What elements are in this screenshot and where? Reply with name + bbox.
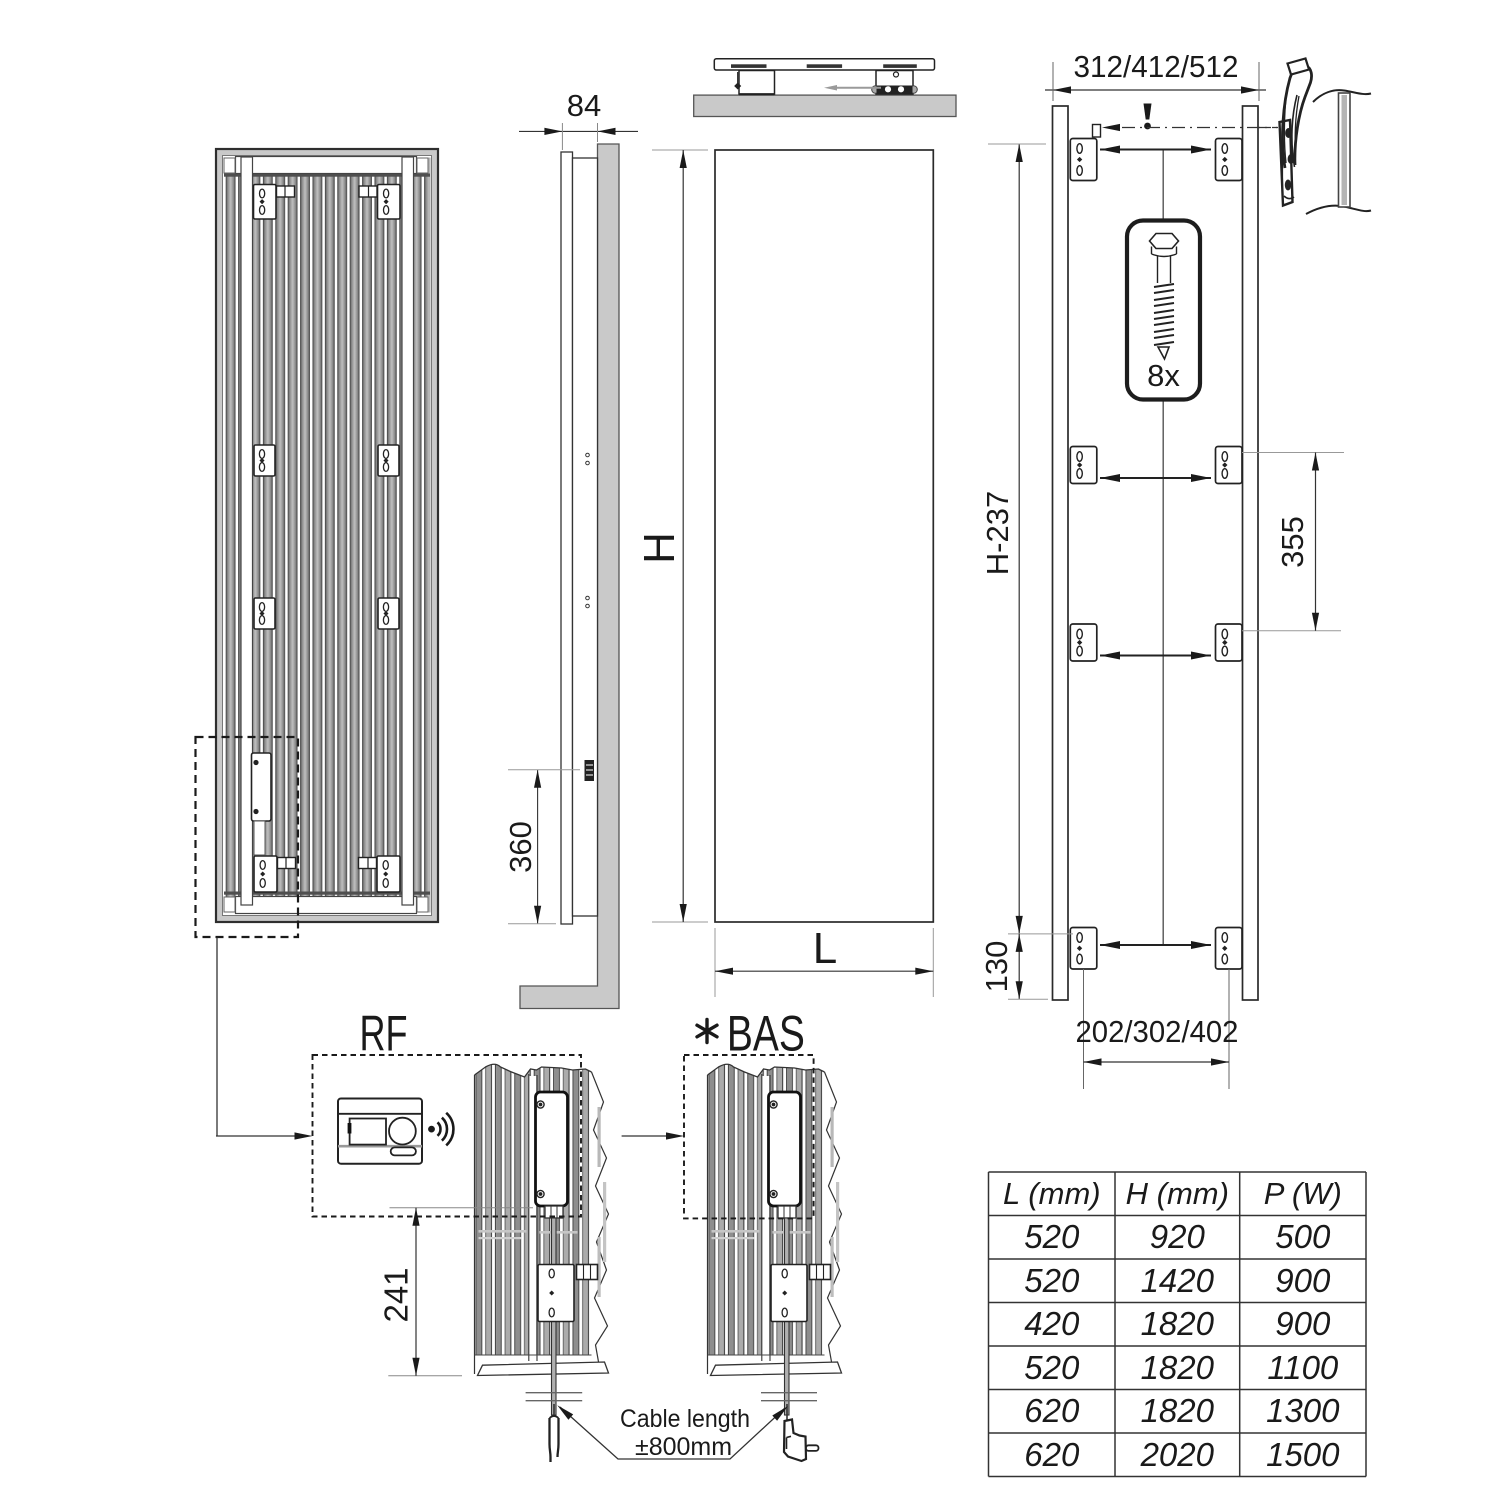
svg-text:900: 900 [1275,1262,1331,1299]
svg-text:1100: 1100 [1267,1349,1339,1386]
svg-text:355: 355 [1275,516,1310,568]
svg-text:1420: 1420 [1141,1262,1215,1299]
svg-text:900: 900 [1275,1305,1331,1342]
svg-text:520: 520 [1024,1262,1080,1299]
svg-text:H-237: H-237 [980,491,1015,575]
svg-text:920: 920 [1150,1218,1206,1255]
svg-text:420: 420 [1024,1305,1080,1342]
svg-text:8x: 8x [1147,358,1180,393]
svg-text:620: 620 [1024,1436,1080,1473]
svg-text:±800mm: ±800mm [635,1433,732,1461]
svg-text:520: 520 [1024,1349,1080,1386]
svg-text:L: L [813,924,837,973]
svg-text:2020: 2020 [1140,1436,1215,1473]
svg-text:1300: 1300 [1266,1392,1340,1429]
svg-text:520: 520 [1024,1218,1080,1255]
svg-text:1820: 1820 [1141,1305,1215,1342]
svg-text:500: 500 [1275,1218,1331,1255]
svg-text:1820: 1820 [1141,1392,1215,1429]
svg-text:241: 241 [378,1267,415,1322]
svg-text:84: 84 [567,88,601,123]
svg-text:130: 130 [979,941,1014,993]
svg-text:1820: 1820 [1141,1349,1215,1386]
svg-text:Cable length: Cable length [620,1405,750,1433]
svg-text:P (W): P (W) [1264,1176,1342,1211]
svg-text:202/302/402: 202/302/402 [1076,1014,1239,1049]
svg-text:H: H [635,532,684,564]
svg-text:H (mm): H (mm) [1126,1176,1229,1211]
svg-text:L (mm): L (mm) [1003,1176,1101,1211]
svg-text:360: 360 [503,821,538,873]
svg-text:620: 620 [1024,1392,1080,1429]
svg-text:RF: RF [360,1006,408,1062]
svg-text:1500: 1500 [1266,1436,1340,1473]
svg-text:312/412/512: 312/412/512 [1074,49,1239,84]
